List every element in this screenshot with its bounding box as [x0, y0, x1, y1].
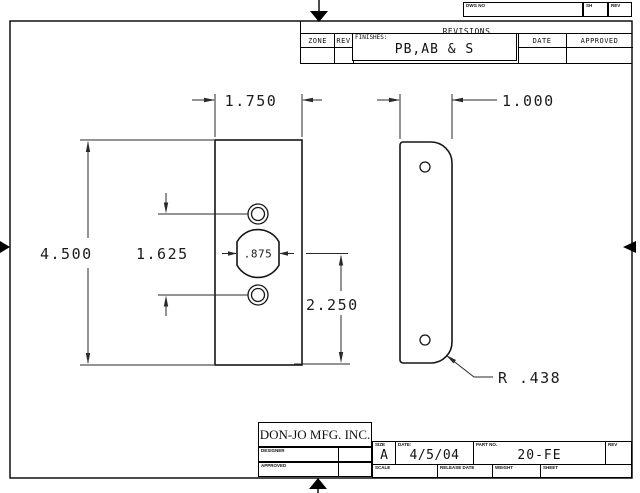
- sheet-border: [10, 21, 632, 478]
- bottom-center-marker-icon: [309, 478, 327, 489]
- designer-cell: DESIGNER: [258, 447, 372, 462]
- rev-label: REV: [608, 443, 617, 448]
- right-center-marker-icon: [623, 241, 636, 253]
- drawing-canvas: 1.750 1.000 4.500: [0, 0, 640, 493]
- release-date-cell: RELEASE DATE: [437, 464, 493, 478]
- approved-label: APPROVED: [261, 464, 286, 469]
- dim-hole-spacing-value: 1.625: [136, 245, 189, 263]
- drawing-sheet: 1.750 1.000 4.500: [0, 0, 640, 493]
- side-view-outline: [400, 142, 452, 363]
- dim-bottom-offset: 2.250: [294, 254, 359, 365]
- size-cell: SIZE A: [372, 441, 396, 465]
- dim-front-width: 1.750: [192, 92, 322, 137]
- company-name: DON-JO MFG. INC.: [259, 423, 371, 446]
- revisions-col-date: DATE: [518, 37, 566, 45]
- date-cell: DATE: 4/5/04: [395, 441, 474, 465]
- dim-side-width: 1.000: [377, 92, 555, 139]
- scale-label: SCALE: [375, 466, 390, 471]
- finishes-box: FINISHES: PB,AB & S: [352, 33, 517, 61]
- rev-cell: REV: [605, 441, 632, 465]
- left-center-marker-icon: [0, 241, 10, 253]
- sh-label: SH: [586, 4, 592, 9]
- sh-box: SH: [583, 2, 608, 17]
- border-center-markers: [0, 0, 636, 493]
- date-label: DATE:: [398, 443, 411, 448]
- part-no-label: PART NO.: [476, 443, 497, 448]
- dim-side-width-value: 1.000: [502, 92, 555, 110]
- size-label: SIZE: [375, 443, 385, 448]
- dim-front-height-value: 4.500: [40, 245, 93, 263]
- weight-cell: WEIGHT: [492, 464, 541, 478]
- dim-front-width-value: 1.750: [225, 92, 278, 110]
- revisions-col-rev: REV: [334, 37, 353, 45]
- sheet-label: SHEET: [543, 466, 558, 471]
- dwg-no-label: DWG NO: [466, 4, 485, 9]
- dim-bottom-offset-value: 2.250: [306, 296, 359, 314]
- rev-label-top: REV: [611, 4, 620, 9]
- sheet-cell: SHEET: [540, 464, 632, 478]
- dwg-no-box: DWG NO: [463, 2, 583, 17]
- dim-center-bore-value: .875: [244, 248, 273, 261]
- revisions-col-zone: ZONE: [301, 37, 334, 45]
- release-date-label: RELEASE DATE: [440, 466, 474, 471]
- company-box: DON-JO MFG. INC.: [258, 422, 372, 447]
- finishes-label: FINISHES:: [355, 35, 388, 41]
- designer-label: DESIGNER: [261, 449, 285, 454]
- rev-box-top: REV: [608, 2, 632, 17]
- dim-corner-radius-value: R .438: [498, 369, 561, 387]
- dim-corner-radius: R .438: [446, 355, 561, 387]
- part-no-cell: PART NO. 20-FE: [473, 441, 606, 465]
- approved-cell: APPROVED: [258, 462, 372, 477]
- weight-label: WEIGHT: [495, 466, 513, 471]
- revisions-col-approved: APPROVED: [566, 37, 633, 45]
- scale-cell: SCALE: [372, 464, 438, 478]
